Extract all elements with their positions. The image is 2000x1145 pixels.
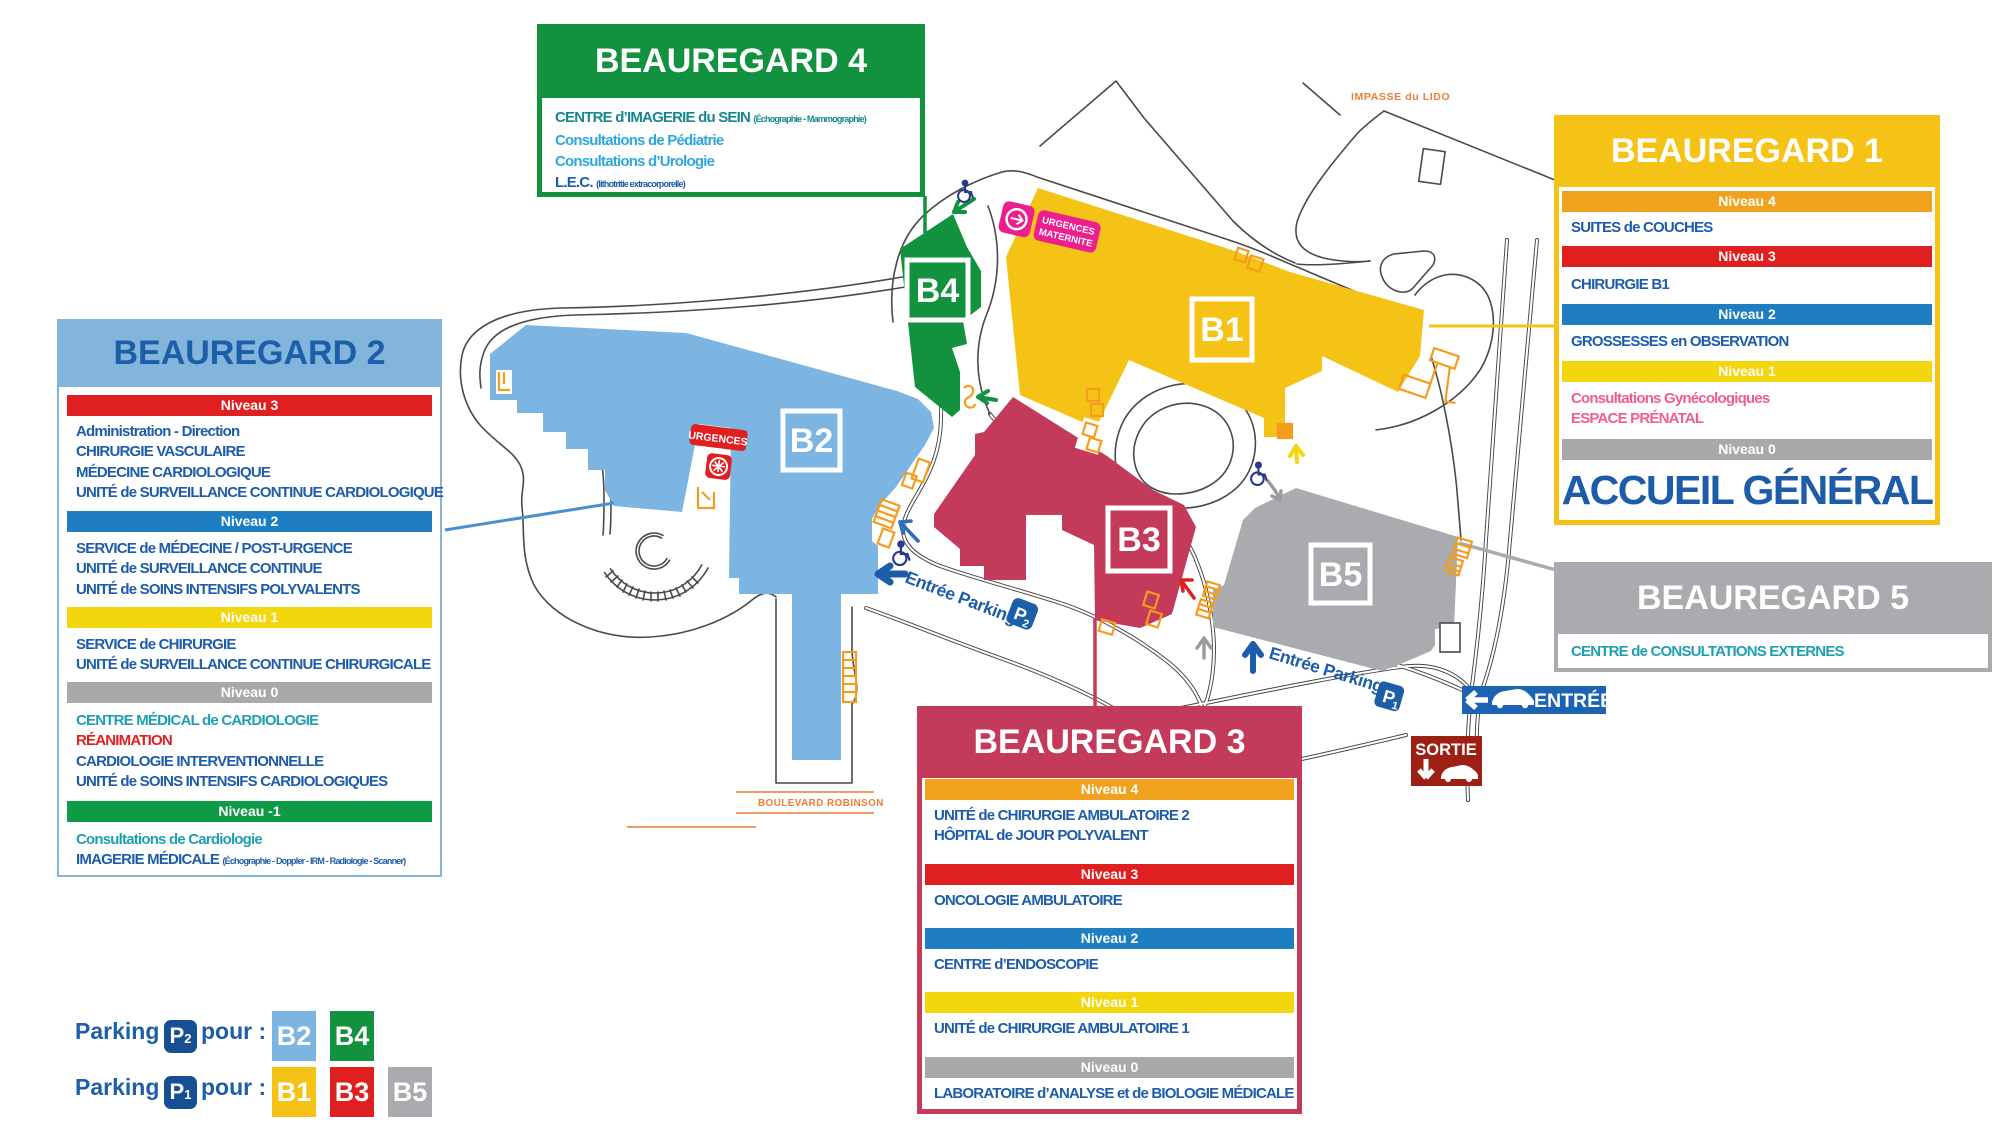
svg-text:IMPASSE du LIDO: IMPASSE du LIDO <box>1351 91 1450 103</box>
svg-text:B1: B1 <box>1200 311 1243 349</box>
svg-text:B3: B3 <box>1117 521 1160 559</box>
svg-text:SORTIE: SORTIE <box>1415 741 1476 759</box>
svg-text:ENTRÉE: ENTRÉE <box>1534 689 1613 712</box>
svg-text:B2: B2 <box>790 422 833 460</box>
svg-text:B4: B4 <box>916 272 960 310</box>
svg-text:B5: B5 <box>1319 556 1362 594</box>
svg-text:BOULEVARD ROBINSON: BOULEVARD ROBINSON <box>758 798 884 809</box>
